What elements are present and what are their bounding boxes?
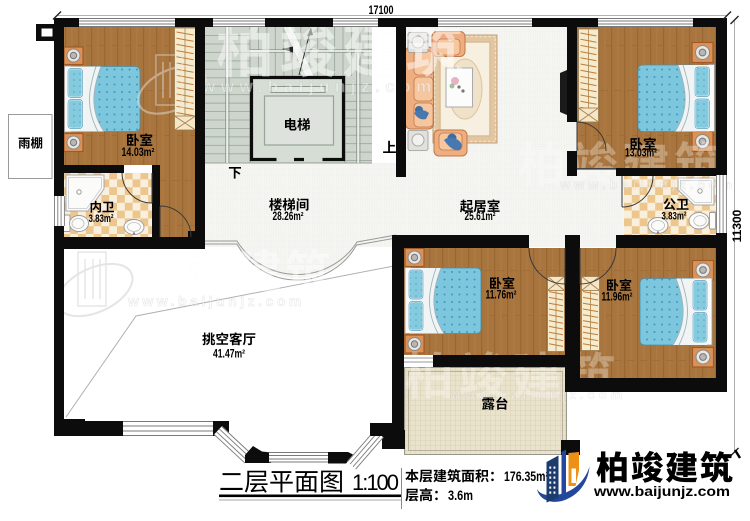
svg-text:25.61m²: 25.61m²	[465, 211, 496, 223]
svg-text:www.baijunjz.com: www.baijunjz.com	[127, 293, 305, 309]
svg-text:3.6m: 3.6m	[448, 488, 473, 503]
svg-text:3.83m²: 3.83m²	[89, 213, 114, 225]
svg-text:17100: 17100	[369, 3, 394, 17]
svg-text:176.35m²: 176.35m²	[504, 469, 549, 484]
svg-text:1:100: 1:100	[352, 470, 399, 495]
svg-text:3.83m²: 3.83m²	[662, 211, 687, 223]
svg-text:13.03m²: 13.03m²	[625, 148, 657, 160]
svg-text:www.baijunjz.com: www.baijunjz.com	[593, 484, 730, 499]
svg-text:28.26m²: 28.26m²	[273, 211, 304, 223]
svg-text:11300: 11300	[730, 209, 744, 242]
svg-text:41.47m²: 41.47m²	[213, 349, 245, 361]
svg-text:11.76m²: 11.76m²	[486, 290, 517, 302]
svg-text:www.baijunjz.com: www.baijunjz.com	[559, 177, 736, 192]
svg-text:11.96m²: 11.96m²	[602, 292, 633, 304]
svg-text:14.03m²: 14.03m²	[122, 147, 155, 159]
